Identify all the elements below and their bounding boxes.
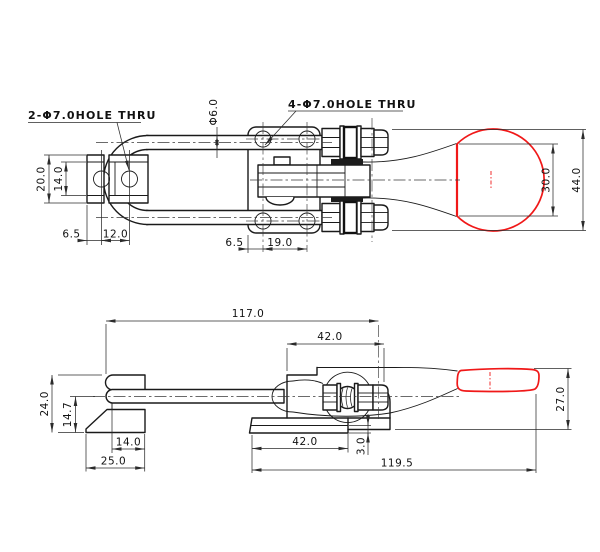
dim-text-25: 25.0 <box>101 456 126 468</box>
note-left-text: 2-Φ7.0HOLE THRU <box>28 109 157 122</box>
dim-text-20: 20.0 <box>36 166 48 191</box>
dim-text-6-5-left: 6.5 <box>62 229 80 241</box>
keeper-top-tab <box>106 375 145 390</box>
dim-text-42-bottom: 42.0 <box>292 436 317 448</box>
dim-text-119-5: 119.5 <box>381 458 414 470</box>
top-view: 20.0 14.0 6.5 12.0 6.5 <box>28 98 586 253</box>
dim-text-27: 27.0 <box>555 386 567 411</box>
dim-text-14-7: 14.7 <box>62 402 74 427</box>
dim-keeper-inner-height: 14.0 <box>53 162 86 196</box>
side-view-centerlines <box>93 325 462 420</box>
dim-text-3: 3.0 <box>356 437 368 455</box>
handle-grip <box>457 369 539 392</box>
dim-text-117: 117.0 <box>232 308 265 320</box>
side-view: 117.0 42.0 24.0 14.7 14.0 25. <box>39 308 572 473</box>
dim-handle-height: 27.0 <box>395 369 572 430</box>
dim-text-12: 12.0 <box>103 229 128 241</box>
dim-text-19: 19.0 <box>267 237 292 249</box>
keeper-side <box>86 375 145 433</box>
dim-text-6-5-right: 6.5 <box>225 237 243 249</box>
dim-text-44: 44.0 <box>571 167 583 192</box>
dim-text-14-side: 14.0 <box>116 437 141 449</box>
dim-base-flange-length: 42.0 <box>252 434 348 473</box>
latch-keeper-top <box>87 155 148 203</box>
keeper-base <box>86 410 145 433</box>
dim-knob-flat: 30.0 <box>459 144 558 216</box>
dim-text-30: 30.0 <box>541 167 553 192</box>
toggle-clamp-drawing: 20.0 14.0 6.5 12.0 6.5 <box>0 0 600 548</box>
dim-text-14: 14.0 <box>53 166 65 191</box>
dim-base-holes-group: 6.5 19.0 <box>225 235 307 253</box>
dim-text-24: 24.0 <box>39 391 51 416</box>
washer-strip-top <box>331 159 363 165</box>
note-right-text: 4-Φ7.0HOLE THRU <box>288 98 417 111</box>
dim-text-42-top: 42.0 <box>317 331 342 343</box>
dim-flange-thickness: 3.0 <box>349 414 371 455</box>
dim-text-phi6: Φ6.0 <box>208 99 220 126</box>
technical-drawing-page: 20.0 14.0 6.5 12.0 6.5 <box>0 0 600 548</box>
